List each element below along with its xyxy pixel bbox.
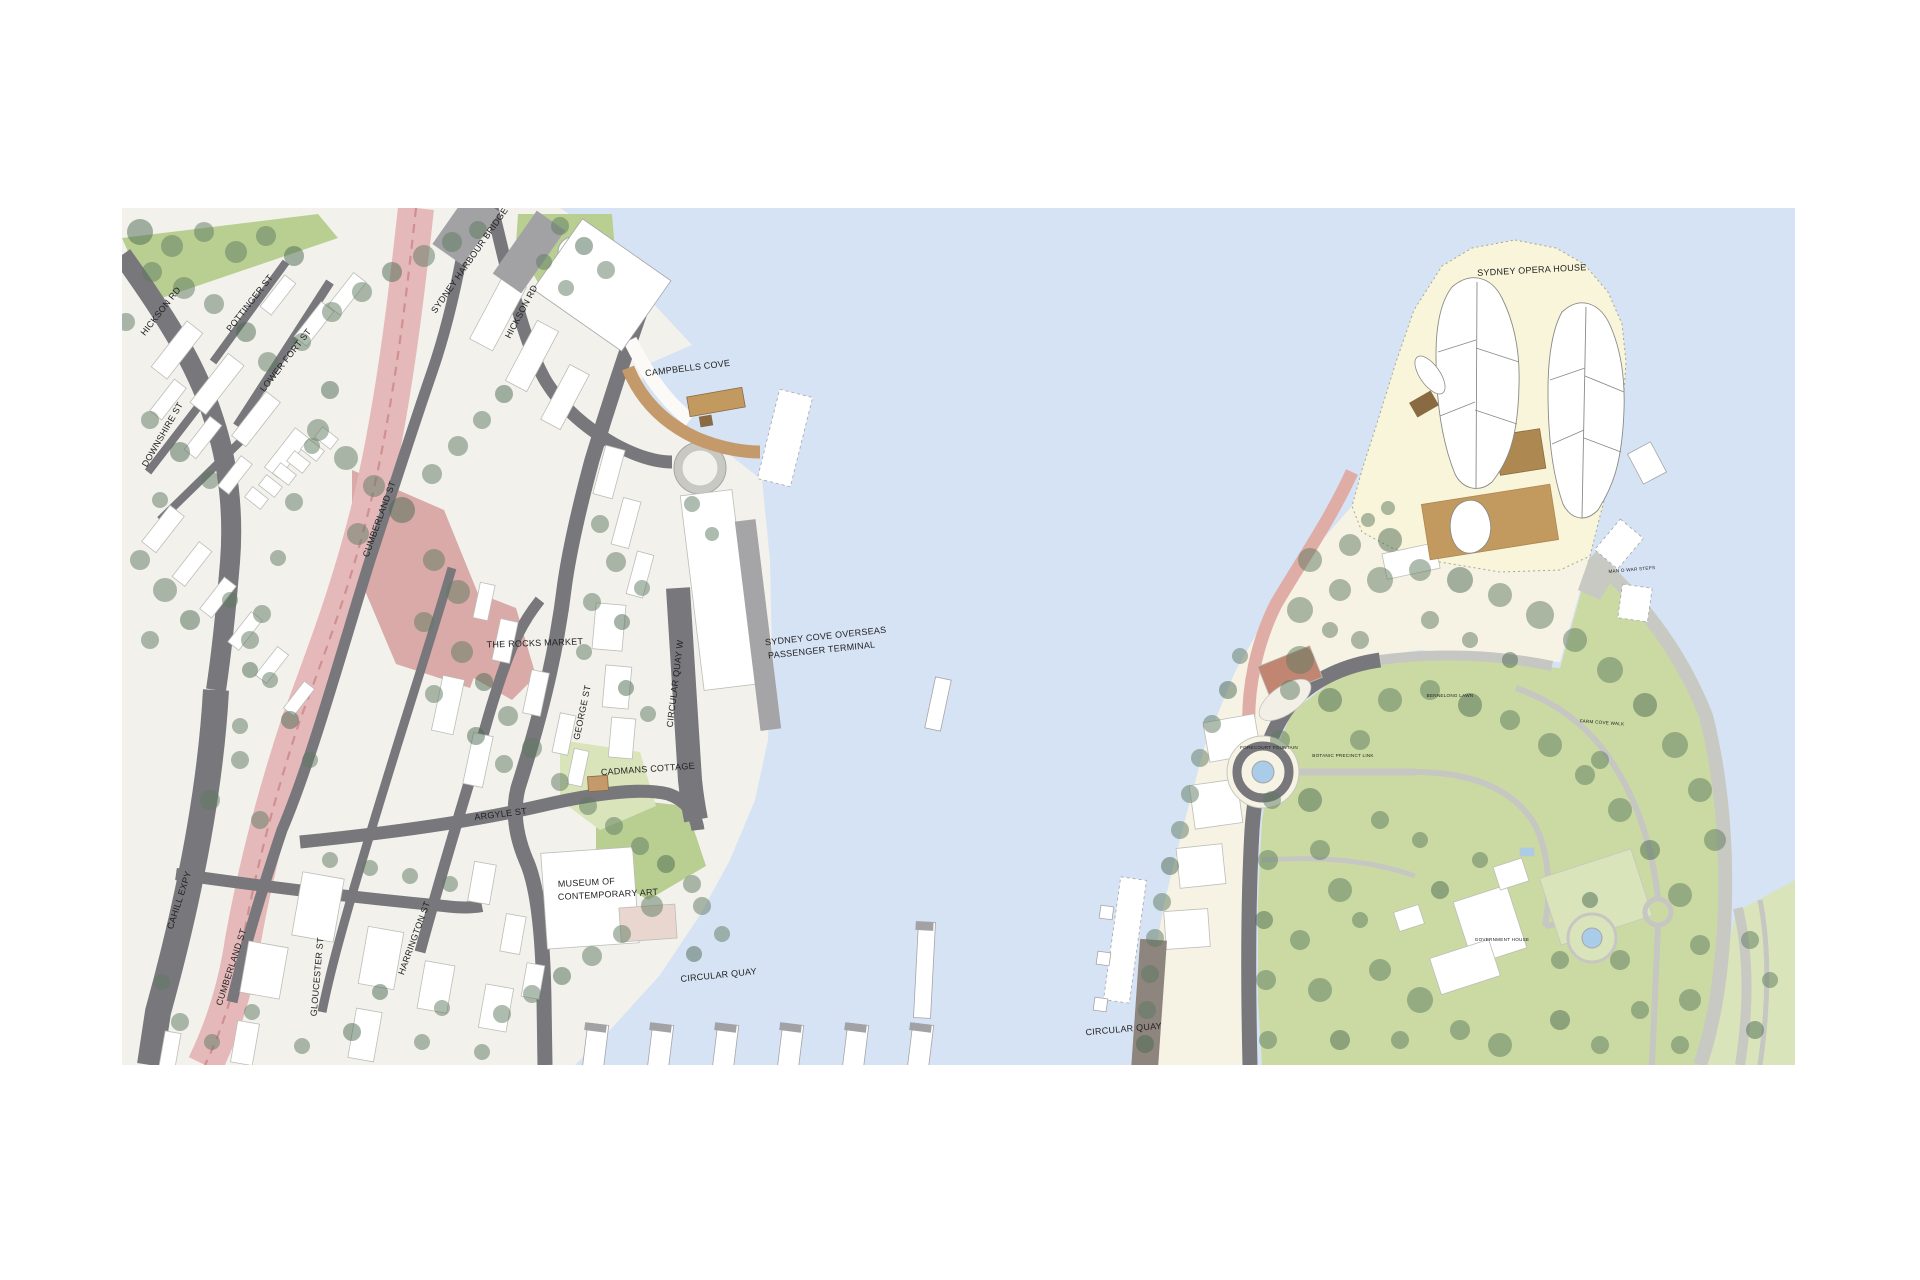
tree-icon — [232, 718, 248, 734]
tree-icon — [640, 706, 656, 722]
tree-icon — [1582, 892, 1598, 908]
tree-icon — [1563, 628, 1587, 652]
tree-icon — [684, 496, 700, 512]
tree-icon — [495, 755, 513, 773]
tree-icon — [1662, 732, 1688, 758]
tree-icon — [423, 549, 445, 571]
tree-icon — [693, 897, 711, 915]
tree-icon — [498, 706, 518, 726]
tree-icon — [1191, 749, 1209, 767]
tree-icon — [1136, 1035, 1154, 1053]
tree-icon — [451, 641, 473, 663]
plan-rect — [1099, 905, 1114, 920]
tree-icon — [1256, 970, 1276, 990]
tree-icon — [422, 464, 442, 484]
tree-icon — [1287, 597, 1313, 623]
tree-icon — [597, 261, 615, 279]
tree-icon — [1551, 951, 1569, 969]
tree-icon — [1286, 646, 1314, 674]
tree-icon — [551, 773, 569, 791]
tree-icon — [1409, 559, 1431, 581]
tree-icon — [1746, 1021, 1764, 1039]
map-label: GOVERNMENT HOUSE — [1475, 937, 1529, 942]
tree-icon — [493, 1005, 511, 1023]
tree-icon — [1171, 821, 1189, 839]
tree-icon — [1671, 1036, 1689, 1054]
tree-icon — [236, 322, 256, 342]
tree-icon — [1153, 893, 1171, 911]
tree-icon — [634, 580, 650, 596]
tree-icon — [302, 752, 318, 768]
tree-icon — [253, 605, 271, 623]
tree-icon — [1640, 840, 1660, 860]
plan-rect — [1618, 584, 1652, 622]
tree-icon — [153, 578, 177, 602]
tree-icon — [141, 411, 159, 429]
plan-circle — [1582, 928, 1602, 948]
tree-icon — [200, 790, 220, 810]
tree-icon — [322, 852, 338, 868]
tree-icon — [683, 875, 701, 893]
tree-icon — [442, 876, 458, 892]
tree-icon — [414, 612, 434, 632]
tree-icon — [141, 631, 159, 649]
tree-icon — [1597, 657, 1623, 683]
plan-circle — [682, 450, 718, 486]
tree-icon — [1407, 987, 1433, 1013]
tree-icon — [1329, 579, 1351, 601]
tree-icon — [1369, 959, 1391, 981]
tree-icon — [558, 280, 574, 296]
tree-icon — [343, 1023, 361, 1041]
tree-icon — [251, 811, 269, 829]
tree-icon — [448, 436, 468, 456]
plan-circle — [1252, 761, 1274, 783]
plan-rect — [699, 415, 713, 427]
tree-icon — [1526, 601, 1554, 629]
tree-icon — [1575, 765, 1595, 785]
tree-icon — [475, 673, 493, 691]
tree-icon — [1310, 840, 1330, 860]
tree-icon — [1203, 715, 1221, 733]
tree-icon — [1371, 811, 1389, 829]
tree-icon — [523, 985, 541, 1003]
tree-icon — [281, 711, 299, 729]
tree-icon — [1258, 850, 1278, 870]
tree-icon — [262, 672, 278, 688]
tree-icon — [1330, 1030, 1350, 1050]
tree-icon — [1412, 832, 1428, 848]
tree-icon — [1280, 680, 1300, 700]
tree-icon — [1741, 931, 1759, 949]
tree-icon — [1688, 778, 1712, 802]
tree-icon — [1421, 611, 1439, 629]
tree-icon — [605, 817, 623, 835]
tree-icon — [1361, 513, 1375, 527]
tree-icon — [641, 895, 663, 917]
tree-icon — [582, 946, 602, 966]
plan-rect — [1164, 909, 1211, 950]
tree-icon — [1351, 631, 1369, 649]
tree-icon — [1500, 710, 1520, 730]
tree-icon — [117, 313, 135, 331]
tree-icon — [389, 497, 415, 523]
tree-icon — [495, 385, 513, 403]
tree-icon — [575, 237, 593, 255]
plan-rect — [588, 775, 609, 791]
tree-icon — [284, 246, 304, 266]
tree-icon — [614, 614, 630, 630]
tree-icon — [657, 855, 675, 873]
tree-icon — [1447, 567, 1473, 593]
tree-icon — [171, 1013, 189, 1031]
tree-icon — [1141, 965, 1159, 983]
tree-icon — [382, 262, 402, 282]
tree-icon — [1608, 798, 1632, 822]
tree-icon — [1146, 929, 1164, 947]
tree-icon — [686, 946, 702, 962]
tree-icon — [334, 446, 358, 470]
plan-rect — [608, 717, 635, 759]
tree-icon — [714, 926, 730, 942]
tree-icon — [1633, 693, 1657, 717]
tree-icon — [1298, 788, 1322, 812]
tree-icon — [536, 254, 552, 270]
tree-icon — [294, 1038, 310, 1054]
tree-icon — [1259, 1031, 1277, 1049]
tree-icon — [414, 1034, 430, 1050]
tree-icon — [1668, 883, 1692, 907]
tree-icon — [180, 610, 200, 630]
tree-icon — [434, 1000, 450, 1016]
tree-icon — [618, 680, 634, 696]
tree-icon — [1350, 730, 1370, 750]
tree-icon — [142, 262, 162, 282]
tree-icon — [1462, 632, 1478, 648]
tree-icon — [425, 685, 443, 703]
tree-icon — [321, 381, 339, 399]
tree-icon — [1308, 978, 1332, 1002]
map-label: BENNELONG LAWN — [1427, 693, 1474, 698]
tree-icon — [1378, 528, 1402, 552]
tree-icon — [1255, 911, 1273, 929]
tree-icon — [222, 592, 238, 608]
tree-icon — [204, 294, 224, 314]
tree-icon — [244, 1004, 260, 1020]
tree-icon — [352, 282, 372, 302]
tree-icon — [204, 1034, 220, 1050]
plan-rect — [916, 922, 933, 931]
tree-icon — [270, 550, 286, 566]
plan-rect — [1520, 848, 1534, 856]
tree-icon — [705, 527, 719, 541]
opera-house-shell — [1436, 278, 1519, 489]
tree-icon — [1502, 652, 1518, 668]
tree-icon — [1762, 972, 1778, 988]
tree-icon — [225, 241, 247, 263]
tree-icon — [1538, 733, 1562, 757]
tree-icon — [446, 580, 470, 604]
tree-icon — [442, 232, 462, 252]
tree-icon — [242, 662, 258, 678]
tree-icon — [474, 1044, 490, 1060]
plan-rect — [1096, 951, 1111, 966]
tree-icon — [1138, 1001, 1156, 1019]
tree-icon — [285, 493, 303, 511]
tree-icon — [1591, 751, 1609, 769]
plan-rect — [240, 941, 288, 999]
tree-icon — [1704, 829, 1726, 851]
tree-icon — [606, 552, 626, 572]
plan-rect — [1176, 844, 1226, 889]
site-plan-map: SYDNEY HARBOUR BRIDGEHICKSON RDPOTTINGER… — [0, 0, 1920, 1280]
tree-icon — [1232, 648, 1248, 664]
tree-icon — [1591, 1036, 1609, 1054]
tree-icon — [1290, 930, 1310, 950]
tree-icon — [1488, 1033, 1512, 1057]
tree-icon — [473, 411, 491, 429]
tree-icon — [241, 631, 259, 649]
tree-icon — [1263, 791, 1281, 809]
plan-rect — [1093, 997, 1108, 1012]
tree-icon — [522, 738, 542, 758]
tree-icon — [1322, 622, 1338, 638]
map-label: FORECOURT FOUNTAIN — [1240, 745, 1298, 750]
tree-icon — [553, 967, 571, 985]
tree-icon — [1550, 1010, 1570, 1030]
tree-icon — [1690, 935, 1710, 955]
tree-icon — [1431, 881, 1449, 899]
map-label: BOTANIC PRECINCT LINK — [1312, 753, 1374, 758]
tree-icon — [256, 226, 276, 246]
tree-icon — [1318, 688, 1342, 712]
tree-icon — [591, 515, 609, 533]
tree-icon — [583, 593, 601, 611]
tree-icon — [130, 550, 150, 570]
tree-icon — [1219, 681, 1237, 699]
tree-icon — [231, 751, 249, 769]
tree-icon — [1378, 688, 1402, 712]
tree-icon — [127, 219, 153, 245]
tree-icon — [1472, 852, 1488, 868]
tree-icon — [1161, 857, 1179, 875]
tree-icon — [161, 235, 183, 257]
tree-icon — [402, 868, 418, 884]
opera-house-shell — [1450, 500, 1491, 553]
tree-icon — [307, 419, 329, 441]
tree-icon — [1181, 785, 1199, 803]
tree-icon — [322, 302, 342, 322]
tree-icon — [363, 475, 385, 497]
tree-icon — [194, 222, 214, 242]
tree-icon — [1631, 1001, 1649, 1019]
tree-icon — [613, 925, 631, 943]
tree-icon — [1381, 501, 1395, 515]
tree-icon — [154, 974, 170, 990]
tree-icon — [1679, 989, 1701, 1011]
tree-icon — [201, 471, 219, 489]
tree-icon — [1339, 534, 1361, 556]
tree-icon — [152, 492, 168, 508]
tree-icon — [362, 860, 378, 876]
tree-icon — [1298, 548, 1322, 572]
tree-icon — [1450, 1020, 1470, 1040]
tree-icon — [1367, 567, 1393, 593]
site-plan-page: { "map": { "description_labels": "archit… — [0, 0, 1920, 1280]
tree-icon — [413, 245, 435, 267]
tree-icon — [170, 442, 190, 462]
tree-icon — [467, 727, 485, 745]
tree-icon — [1352, 912, 1368, 928]
tree-icon — [1328, 878, 1352, 902]
tree-icon — [579, 797, 597, 815]
tree-icon — [1610, 950, 1630, 970]
tree-icon — [1488, 583, 1512, 607]
tree-icon — [1391, 1031, 1409, 1049]
tree-icon — [631, 837, 649, 855]
tree-icon — [372, 984, 388, 1000]
tree-icon — [551, 217, 569, 235]
